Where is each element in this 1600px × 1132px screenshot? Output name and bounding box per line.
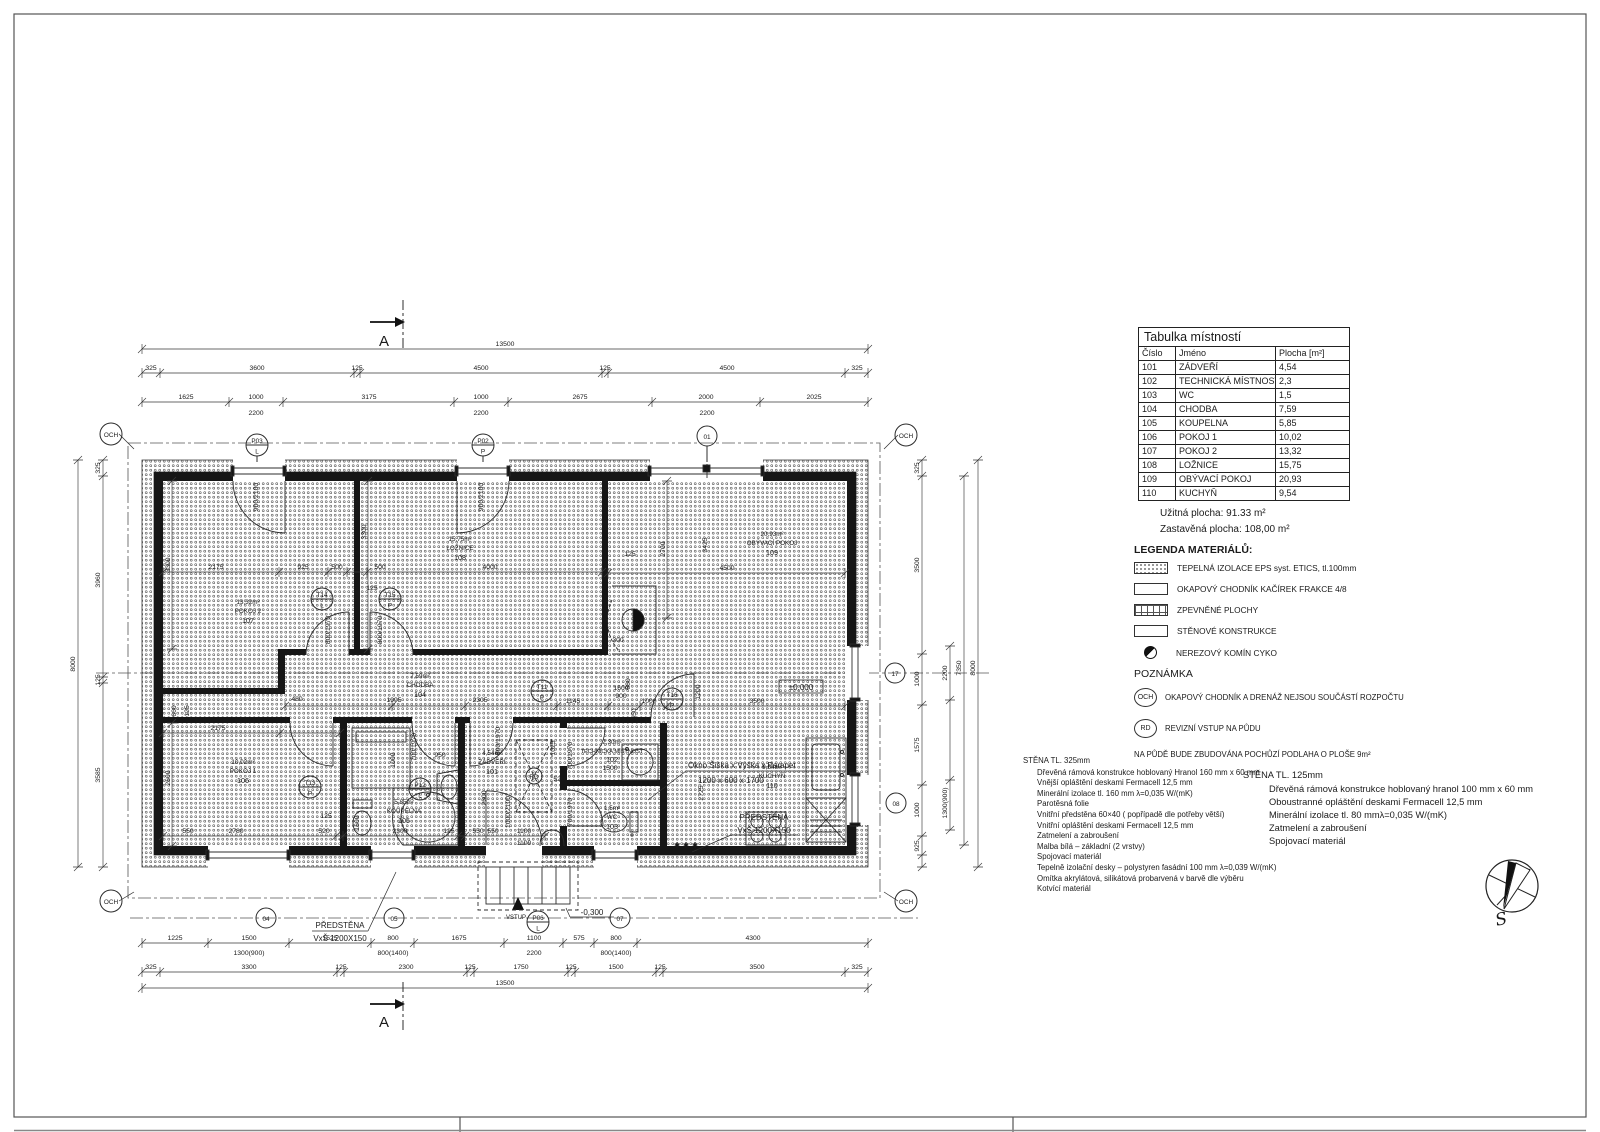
compass-south-label: S bbox=[1493, 909, 1509, 931]
dim: 2675 bbox=[572, 394, 587, 401]
marker-p12: P12L bbox=[409, 778, 431, 800]
dim: 800(1400) bbox=[601, 950, 632, 957]
svg-text:TECHNICKÁ MÍSTNOST: TECHNICKÁ MÍSTNOST bbox=[581, 748, 644, 755]
svg-text:20,93m²: 20,93m² bbox=[760, 531, 783, 538]
dim: 2300 bbox=[392, 828, 407, 835]
dim: 950 bbox=[434, 752, 446, 759]
note-och: OCHOKAPOVÝ CHODNÍK A DRENÁŽ NEJSOU SOUČÁ… bbox=[1134, 688, 1414, 707]
dim: 1025 bbox=[550, 740, 557, 755]
area-summary: Užitná plocha: 91.33 m² Zastavěná plocha… bbox=[1160, 506, 1290, 538]
gravel-swatch-icon bbox=[1134, 583, 1168, 595]
svg-text:15,75m²: 15,75m² bbox=[448, 536, 471, 543]
svg-text:105: 105 bbox=[398, 816, 410, 825]
marker-t11: T11P bbox=[531, 680, 553, 702]
dim: 1100 bbox=[517, 840, 532, 847]
svg-text:L: L bbox=[320, 603, 324, 610]
svg-text:P02: P02 bbox=[477, 438, 489, 445]
marker-p02: P02P bbox=[472, 434, 494, 462]
svg-text:OCH: OCH bbox=[104, 899, 119, 906]
dim: 2600 bbox=[481, 790, 488, 805]
rd-circle-icon: RD bbox=[1134, 719, 1157, 738]
marker-och-tr: OCH bbox=[895, 424, 917, 446]
dim: 660 bbox=[171, 705, 178, 717]
table-row: 102TECHNICKÁ MÍSTNOST2,3 bbox=[1139, 375, 1349, 389]
svg-text:2,30m²: 2,30m² bbox=[602, 739, 622, 746]
wall-325-heading: STĚNA TL. 325mm bbox=[1023, 756, 1323, 767]
dim: 1500 bbox=[602, 765, 617, 772]
svg-text:P03: P03 bbox=[251, 438, 263, 445]
dim: 1575 bbox=[914, 737, 921, 752]
svg-text:5,85m²: 5,85m² bbox=[394, 799, 414, 806]
svg-text:P06: P06 bbox=[532, 915, 544, 922]
paved-swatch-icon bbox=[1134, 604, 1168, 616]
spec-line: Minerální izolace tl. 80 mmλ=0,035 W/(mK… bbox=[1243, 809, 1573, 822]
marker-och-bl: OCH bbox=[100, 890, 122, 912]
insulation-swatch-icon bbox=[1134, 562, 1168, 574]
table-row: 103WC1,5 bbox=[1139, 389, 1349, 403]
svg-text:OCH: OCH bbox=[104, 432, 119, 439]
marker-01: 01 bbox=[697, 426, 717, 462]
svg-text:KOUPELNA: KOUPELNA bbox=[387, 808, 422, 815]
svg-text:109: 109 bbox=[766, 548, 778, 557]
dim: 3500 bbox=[749, 964, 764, 971]
dim: 1100 bbox=[527, 935, 542, 942]
dim: 2200 bbox=[248, 410, 263, 417]
dim: 1500 bbox=[241, 935, 256, 942]
svg-text:1,5m²: 1,5m² bbox=[604, 805, 620, 812]
svg-text:P12: P12 bbox=[414, 782, 426, 789]
dim: 2200 bbox=[699, 410, 714, 417]
legend-item: NEREZOVÝ KOMÍN CYKO bbox=[1134, 646, 1384, 659]
dim: 550 bbox=[182, 828, 194, 835]
dim: 800/1970 bbox=[325, 616, 332, 645]
table-row: 105KOUPELNA5,85 bbox=[1139, 417, 1349, 431]
svg-text:110: 110 bbox=[766, 781, 777, 790]
dim: 2200 bbox=[942, 665, 949, 680]
dim: 3300 bbox=[241, 964, 256, 971]
spec-line: Tepelně izolační desky – polystyren fasá… bbox=[1023, 863, 1323, 874]
table-row: 107POKOJ 213,32 bbox=[1139, 445, 1349, 459]
dim: 1995 bbox=[386, 697, 401, 704]
dim: 925 bbox=[914, 840, 921, 852]
svg-text:7,59m²: 7,59m² bbox=[410, 673, 430, 680]
svg-text:WC: WC bbox=[607, 814, 618, 821]
dim: 3960 bbox=[95, 572, 102, 587]
svg-text:10,02m²: 10,02m² bbox=[231, 759, 254, 766]
dim: 2200 bbox=[526, 950, 541, 957]
dim: 700/1970 bbox=[567, 742, 574, 771]
dim: 125 bbox=[443, 828, 455, 835]
dim: 125 bbox=[95, 674, 102, 686]
predstena2-annotation-size: VxŠ 1200X150 bbox=[313, 934, 367, 943]
dim: 4500 bbox=[719, 565, 734, 572]
svg-text:RD: RD bbox=[529, 774, 539, 781]
dim: 4500 bbox=[473, 365, 488, 372]
rooms-table-title: Tabulka místností bbox=[1139, 328, 1349, 347]
dim: 1000 bbox=[914, 671, 921, 686]
table-row: 104CHODBA7,59 bbox=[1139, 403, 1349, 417]
dim: 300 bbox=[612, 637, 624, 644]
dim: 1225 bbox=[167, 935, 182, 942]
dim: 125 bbox=[184, 705, 191, 717]
svg-text:L: L bbox=[255, 449, 259, 456]
predstena2-annotation: PŘEDSTĚNA bbox=[316, 921, 366, 930]
dim: 700/1970 bbox=[567, 798, 574, 827]
svg-text:POKOJ 2: POKOJ 2 bbox=[235, 608, 262, 615]
spec-line: Oboustranné opláštění deskami Fermacell … bbox=[1243, 796, 1573, 809]
dim: 3300 bbox=[361, 524, 368, 539]
svg-text:103: 103 bbox=[606, 822, 618, 831]
marker-och-br: OCH bbox=[895, 890, 917, 912]
section-label-bottom: A bbox=[379, 1014, 389, 1031]
dim: 550 bbox=[472, 828, 484, 835]
spec-line: Kotvící materiál bbox=[1023, 884, 1323, 895]
rooms-table-header: Číslo Jméno Plocha [m²] bbox=[1139, 347, 1349, 361]
marker-p03: P03L bbox=[246, 434, 268, 462]
svg-text:P: P bbox=[540, 695, 544, 702]
dim: 800 bbox=[387, 935, 399, 942]
notes-heading: POZNÁMKA bbox=[1134, 668, 1414, 680]
level-minus-label: -0,300 bbox=[581, 908, 604, 917]
legend-item: OKAPOVÝ CHODNÍK KAČÍREK FRAKCE 4/8 bbox=[1134, 583, 1384, 595]
svg-text:L: L bbox=[418, 793, 422, 800]
svg-text:ZÁDVEŘÍ: ZÁDVEŘÍ bbox=[478, 757, 506, 766]
svg-text:107: 107 bbox=[242, 616, 254, 625]
dim: 3425 bbox=[702, 537, 709, 552]
predstena-annotation: PŘEDSTĚNA bbox=[740, 813, 790, 822]
built-area: Zastavěná plocha: 108,00 m² bbox=[1160, 522, 1290, 538]
svg-text:05: 05 bbox=[390, 916, 398, 923]
dim: 13500 bbox=[496, 980, 515, 987]
wall-swatch-icon bbox=[1134, 625, 1168, 637]
dim: 1000 bbox=[914, 802, 921, 817]
dim: 680 bbox=[625, 678, 632, 690]
dim: 925 bbox=[297, 564, 309, 571]
dim: 1300(900) bbox=[942, 788, 949, 819]
legend-heading: LEGENDA MATERIÁLŮ: bbox=[1134, 544, 1384, 556]
dim: 125 bbox=[624, 551, 636, 558]
spec-line: Omítka akrylátová, silikátová probarvená… bbox=[1023, 874, 1323, 885]
dim: 900 bbox=[615, 693, 627, 700]
legend-item: ZPEVNĚNÉ PLOCHY bbox=[1134, 604, 1384, 616]
marker-08: 08 bbox=[886, 793, 906, 813]
dim: 550 bbox=[631, 708, 638, 720]
dim: 1000 bbox=[641, 698, 656, 705]
dim: 1145 bbox=[566, 698, 581, 705]
svg-text:T11: T11 bbox=[537, 684, 548, 691]
svg-text:108: 108 bbox=[454, 553, 466, 562]
svg-text:CHODBA: CHODBA bbox=[407, 682, 435, 689]
predstena-annotation-size: VxŠ 1200X150 bbox=[737, 826, 791, 835]
rooms-table-body: 101ZÁDVEŘÍ4,54102TECHNICKÁ MÍSTNOST2,310… bbox=[1139, 361, 1349, 500]
materials-legend: LEGENDA MATERIÁLŮ: TEPELNÁ IZOLACE EPS s… bbox=[1134, 544, 1384, 668]
rooms-table: Tabulka místností Číslo Jméno Plocha [m²… bbox=[1138, 327, 1350, 501]
dim: 325 bbox=[145, 365, 157, 372]
col-cislo: Číslo bbox=[1139, 347, 1176, 360]
dim: 3500 bbox=[914, 557, 921, 572]
svg-text:13,32m²: 13,32m² bbox=[236, 599, 259, 606]
dim: 900/2100 bbox=[253, 483, 260, 512]
dim: 1000 bbox=[248, 394, 263, 401]
dim: 7350 bbox=[956, 660, 963, 675]
dim: 1000 bbox=[473, 394, 488, 401]
svg-text:T16: T16 bbox=[666, 692, 677, 699]
level-zero-label: ±0,000 bbox=[789, 683, 814, 692]
dim: 325 bbox=[851, 365, 863, 372]
dim: 325 bbox=[914, 462, 921, 474]
dim: 3175 bbox=[361, 394, 376, 401]
svg-text:POKOJ 1: POKOJ 1 bbox=[230, 768, 257, 775]
dim: 1200 bbox=[695, 684, 702, 699]
dim: 575 bbox=[573, 935, 585, 942]
dim: 1000 bbox=[390, 752, 397, 767]
wall-125-heading: STĚNA TL. 125mm bbox=[1243, 769, 1573, 782]
dim: 2200 bbox=[473, 410, 488, 417]
och-circle-icon: OCH bbox=[1134, 688, 1157, 707]
usable-area: Užitná plocha: 91.33 m² bbox=[1160, 506, 1290, 522]
svg-text:L: L bbox=[536, 926, 540, 933]
spec-line: Dřevěná rámová konstrukce hoblovaný hran… bbox=[1243, 783, 1573, 796]
dim: 1300(900) bbox=[234, 950, 265, 957]
dim: 2300 bbox=[398, 964, 413, 971]
dim: 1500 bbox=[608, 964, 623, 971]
svg-text:LOŽNICE: LOŽNICE bbox=[446, 543, 473, 552]
dim: 500 bbox=[331, 564, 343, 571]
dim: 1600 bbox=[354, 815, 361, 830]
dim: 3300 bbox=[165, 557, 172, 572]
dim: 13500 bbox=[496, 341, 515, 348]
dim: 125 bbox=[366, 585, 378, 592]
dim: 700/1970 bbox=[411, 733, 418, 762]
dim: 4500 bbox=[719, 365, 734, 372]
svg-text:T13: T13 bbox=[304, 780, 315, 787]
okno-annotation: Okno Šiška x Výška x Parapet bbox=[688, 761, 796, 770]
drawing-sheet: { "rooms_table": { "title": "Tabulka mís… bbox=[0, 0, 1600, 1132]
svg-text:OBÝVACÍ POKOJ: OBÝVACÍ POKOJ bbox=[747, 538, 798, 547]
dim: 520 bbox=[553, 776, 565, 783]
legend-item: TEPELNÁ IZOLACE EPS syst. ETICS, tl.100m… bbox=[1134, 562, 1384, 574]
dim: 800 bbox=[610, 935, 622, 942]
dim: 125 bbox=[320, 813, 332, 820]
dim: 125 bbox=[654, 964, 666, 971]
wall-125-lines: Dřevěná rámová konstrukce hoblovaný hran… bbox=[1243, 783, 1573, 848]
dim: 500 bbox=[374, 564, 386, 571]
dim: 900/2100 bbox=[478, 483, 485, 512]
dim: 3500 bbox=[749, 698, 764, 705]
dim: 325 bbox=[851, 964, 863, 971]
chimney-swatch-icon bbox=[1144, 646, 1157, 659]
dim: 1000/2100 bbox=[505, 796, 512, 828]
section-label-top: A bbox=[379, 333, 389, 350]
svg-text:P: P bbox=[388, 603, 392, 610]
dim: 3585 bbox=[95, 767, 102, 782]
svg-text:07: 07 bbox=[616, 916, 624, 923]
svg-text:106: 106 bbox=[237, 776, 249, 785]
dim: 4000 bbox=[482, 564, 497, 571]
table-row: 106POKOJ 110,02 bbox=[1139, 431, 1349, 445]
table-row: 110KUCHYŇ9,54 bbox=[1139, 487, 1349, 500]
dim: 125 bbox=[351, 365, 363, 372]
dim: 3600 bbox=[249, 365, 264, 372]
svg-text:P: P bbox=[481, 449, 485, 456]
dim: 480 bbox=[291, 696, 303, 703]
dim: 125 bbox=[565, 964, 577, 971]
col-jmeno: Jméno bbox=[1176, 347, 1276, 360]
svg-text:P: P bbox=[308, 791, 312, 798]
svg-text:OCH: OCH bbox=[899, 899, 914, 906]
svg-text:04: 04 bbox=[262, 916, 270, 923]
dim: 1625 bbox=[178, 394, 193, 401]
dim: 125 bbox=[335, 964, 347, 971]
dim: 800(1400) bbox=[378, 950, 409, 957]
svg-text:P: P bbox=[670, 703, 674, 710]
dim: 4300 bbox=[745, 935, 760, 942]
dim: 1100 bbox=[517, 828, 532, 835]
table-row: 109OBÝVACÍ POKOJ20,93 bbox=[1139, 473, 1349, 487]
table-row: 108LOŽNICE15,75 bbox=[1139, 459, 1349, 473]
dim: 2700 bbox=[660, 541, 667, 556]
marker-p06: P06L bbox=[527, 911, 549, 933]
dim: 550 bbox=[487, 828, 499, 835]
spec-line: Zatmelení a zabroušení bbox=[1243, 822, 1573, 835]
svg-text:01: 01 bbox=[703, 434, 711, 441]
vstup-label: VSTUP bbox=[506, 915, 526, 921]
dim: 2175 bbox=[210, 725, 225, 732]
note-rd: RDREVIZNÍ VSTUP NA PŮDU bbox=[1134, 719, 1414, 738]
dim: 1750 bbox=[513, 964, 528, 971]
marker-t15: T15P bbox=[379, 588, 401, 610]
dim: 800/1970 bbox=[377, 616, 384, 645]
svg-text:T14: T14 bbox=[316, 592, 327, 599]
svg-text:4,54m²: 4,54m² bbox=[482, 750, 502, 757]
table-row: 101ZÁDVEŘÍ4,54 bbox=[1139, 361, 1349, 375]
spec-line: Spojovací materiál bbox=[1023, 852, 1323, 863]
dim: 520 bbox=[318, 828, 330, 835]
dim: 125 bbox=[599, 365, 611, 372]
notes-block: POZNÁMKA OCHOKAPOVÝ CHODNÍK A DRENÁŽ NEJ… bbox=[1134, 668, 1414, 759]
okno-annotation-size: 1200 x 600 x 1700 bbox=[698, 776, 764, 785]
svg-text:104: 104 bbox=[414, 690, 426, 699]
legend-item: STĚNOVÉ KONSTRUKCE bbox=[1134, 625, 1384, 637]
dim: 8000 bbox=[970, 660, 977, 675]
dim: 125 bbox=[464, 964, 476, 971]
dim: 2025 bbox=[806, 394, 821, 401]
svg-text:OCH: OCH bbox=[899, 433, 914, 440]
dim: 2780 bbox=[228, 828, 243, 835]
svg-text:101: 101 bbox=[486, 767, 498, 776]
marker-t14: T14L bbox=[311, 588, 333, 610]
marker-och-tl: OCH bbox=[100, 423, 122, 445]
dim: 8000 bbox=[70, 656, 77, 671]
col-plocha: Plocha [m²] bbox=[1276, 347, 1347, 360]
svg-text:08: 08 bbox=[892, 801, 900, 808]
svg-text:T15: T15 bbox=[384, 592, 395, 599]
dim: 2725 bbox=[698, 785, 705, 800]
dim: 325 bbox=[95, 462, 102, 474]
dim: 2000 bbox=[698, 394, 713, 401]
compass-icon: S bbox=[1486, 860, 1538, 931]
wall-125-spec: STĚNA TL. 125mm Dřevěná rámová konstrukc… bbox=[1243, 769, 1573, 848]
marker-t13: T13P bbox=[299, 776, 321, 798]
svg-text:102: 102 bbox=[606, 755, 618, 764]
dim: 1675 bbox=[451, 935, 466, 942]
marker-t16: T16P bbox=[661, 688, 683, 710]
svg-text:17: 17 bbox=[891, 671, 899, 678]
dim: 2305 bbox=[472, 697, 487, 704]
dim: 2600 bbox=[165, 770, 172, 785]
dim: 325 bbox=[145, 964, 157, 971]
dim: 2175 bbox=[208, 564, 223, 571]
spec-line: Spojovací materiál bbox=[1243, 835, 1573, 848]
stars-symbol: ✱ ✱ ✱ bbox=[674, 841, 699, 850]
